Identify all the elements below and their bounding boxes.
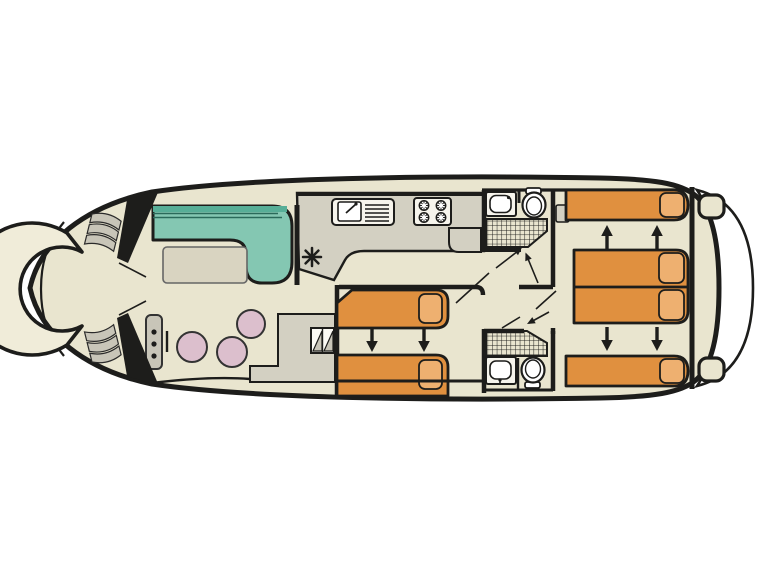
washbasin-aft <box>486 357 516 385</box>
burner-2 <box>436 201 445 210</box>
burner-4 <box>436 213 445 222</box>
salon-table <box>163 247 247 283</box>
deck-steps-icon <box>311 328 334 353</box>
boat-floor-plan-canvas <box>0 0 768 576</box>
galley-sink <box>332 199 394 225</box>
pillow <box>419 360 442 389</box>
pillow <box>660 193 684 217</box>
boat-floor-plan <box>0 0 768 576</box>
burner-1 <box>419 201 428 210</box>
pillow <box>660 359 684 383</box>
stool-2 <box>217 337 247 367</box>
pillow <box>419 294 442 323</box>
sofa-backrest-band <box>153 206 287 212</box>
stern-step-top <box>699 195 724 218</box>
stool-1 <box>177 332 207 362</box>
cabin-aft <box>566 190 688 386</box>
stern-step-bottom <box>699 358 724 381</box>
pillow <box>659 290 684 320</box>
heater-asterisk <box>303 248 321 266</box>
washbasin-fore <box>486 192 516 216</box>
pillow <box>659 253 684 283</box>
burner-3 <box>419 213 428 222</box>
wardrobe-cabinet <box>449 228 481 252</box>
galley-stove <box>414 198 451 225</box>
stool-3 <box>237 310 265 338</box>
